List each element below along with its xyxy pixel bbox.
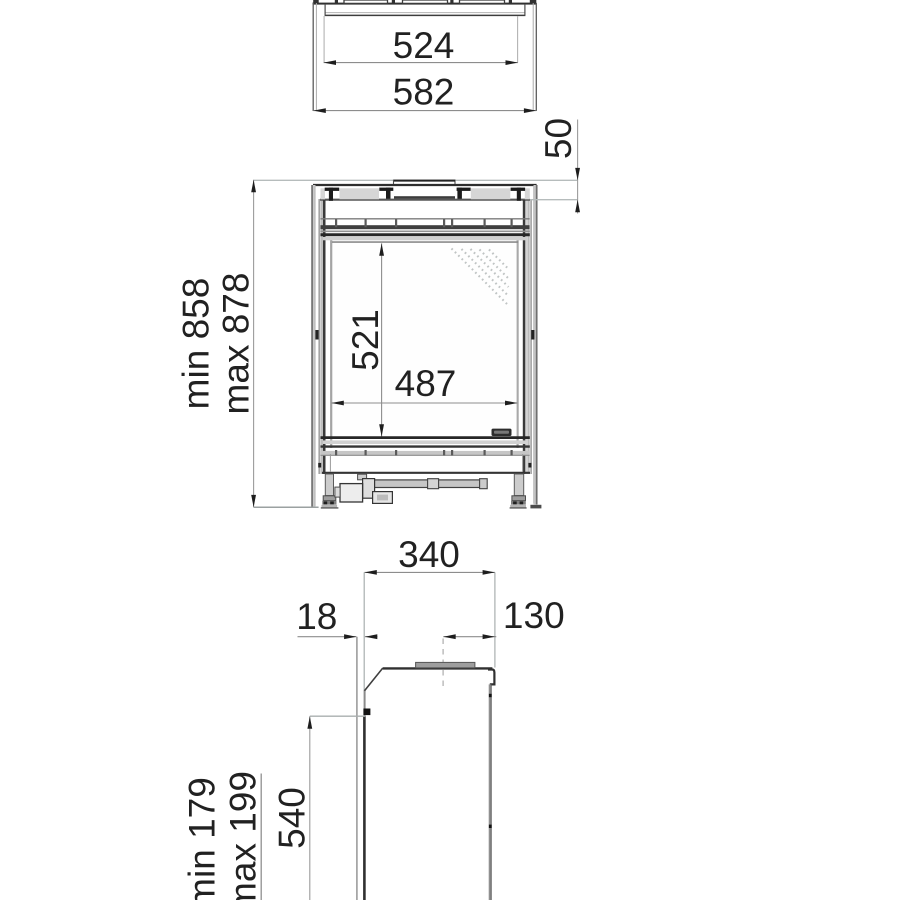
svg-text:50: 50 (538, 118, 579, 159)
svg-text:18: 18 (296, 596, 337, 637)
svg-text:540: 540 (272, 787, 313, 849)
svg-text:524: 524 (393, 25, 455, 66)
svg-text:582: 582 (393, 71, 455, 112)
svg-text:min 179: min 179 (182, 777, 223, 900)
svg-text:521: 521 (345, 309, 386, 371)
svg-text:max 878: max 878 (215, 273, 256, 415)
svg-text:min 858: min 858 (176, 278, 217, 410)
svg-text:130: 130 (503, 595, 565, 636)
svg-text:340: 340 (398, 534, 460, 575)
svg-text:487: 487 (395, 363, 457, 404)
svg-text:max 199: max 199 (223, 771, 264, 900)
